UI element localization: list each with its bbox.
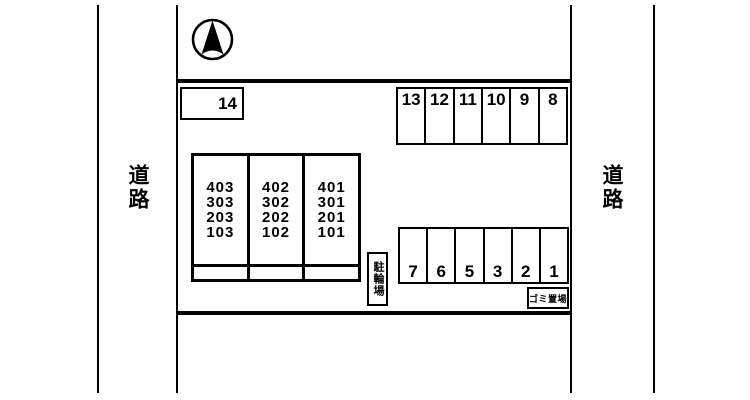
parking-space-14: 14 xyxy=(180,87,244,120)
parking-space: 7 xyxy=(400,229,428,282)
parking-space: 2 xyxy=(513,229,541,282)
garbage-area-label: ゴミ置場 xyxy=(529,292,567,305)
parking-space: 11 xyxy=(455,89,483,143)
room-number: 403 xyxy=(194,180,247,195)
property-right-border xyxy=(570,5,572,393)
parking-space: 6 xyxy=(428,229,456,282)
road-label-left: 道路 xyxy=(127,164,148,212)
building-column: 402 302 202 102 xyxy=(250,156,306,279)
road-left-outer-line xyxy=(97,5,99,393)
room-number: 201 xyxy=(305,210,358,225)
room-number: 302 xyxy=(250,195,303,210)
property-top-border xyxy=(177,79,572,83)
room-number: 101 xyxy=(305,225,358,240)
room-number: 402 xyxy=(250,180,303,195)
building-column: 401 301 201 101 xyxy=(305,156,358,279)
parking-space: 8 xyxy=(540,89,566,143)
road-right-outer-line xyxy=(653,5,655,393)
building-block: 403 303 203 103 402 302 202 102 401 301 … xyxy=(191,153,361,282)
building-entrance-strip xyxy=(305,264,358,279)
garbage-area-box: ゴミ置場 xyxy=(527,287,569,309)
parking-space: 13 xyxy=(398,89,426,143)
room-list: 402 302 202 102 xyxy=(250,156,303,264)
room-number: 203 xyxy=(194,210,247,225)
room-list: 403 303 203 103 xyxy=(194,156,247,264)
road-label-right: 道路 xyxy=(601,164,622,212)
parking-space: 10 xyxy=(483,89,511,143)
property-bottom-border xyxy=(177,311,572,315)
room-list: 401 301 201 101 xyxy=(305,156,358,264)
north-arrow-icon xyxy=(190,17,235,62)
parking-row-top: 13 12 11 10 9 8 xyxy=(396,87,568,145)
room-number: 102 xyxy=(250,225,303,240)
room-number: 303 xyxy=(194,195,247,210)
room-number: 103 xyxy=(194,225,247,240)
parking-space: 9 xyxy=(511,89,539,143)
room-number: 202 xyxy=(250,210,303,225)
property-left-border xyxy=(176,5,178,393)
parking-row-bottom: 7 6 5 3 2 1 xyxy=(398,227,569,284)
parking-space: 3 xyxy=(485,229,513,282)
bicycle-parking-box: 駐輪場 xyxy=(367,252,388,306)
room-number: 401 xyxy=(305,180,358,195)
room-number: 301 xyxy=(305,195,358,210)
parking-space: 1 xyxy=(541,229,567,282)
parking-space-14-label: 14 xyxy=(218,94,237,113)
site-plan: 道路 道路 14 13 12 11 10 9 8 403 303 203 103 xyxy=(0,0,750,400)
building-entrance-strip xyxy=(250,264,303,279)
building-entrance-strip xyxy=(194,264,247,279)
parking-space: 5 xyxy=(456,229,484,282)
bicycle-parking-label: 駐輪場 xyxy=(372,261,383,297)
parking-space: 12 xyxy=(426,89,454,143)
building-column: 403 303 203 103 xyxy=(194,156,250,279)
